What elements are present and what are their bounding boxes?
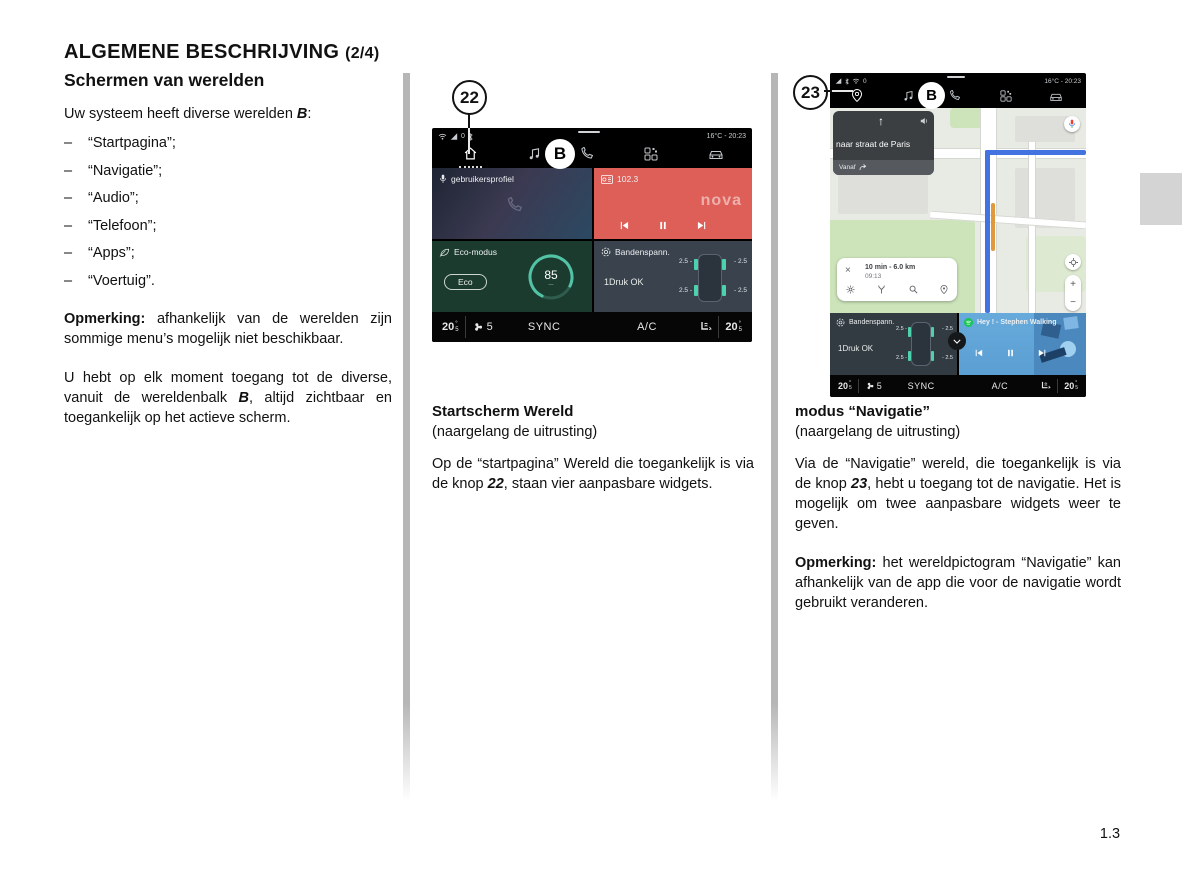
caption-body: Op de “startpagina” Wereld die toeganke­… <box>432 454 754 494</box>
vehicle-world-icon <box>1049 91 1063 102</box>
column-divider <box>403 73 410 801</box>
tyre-icon <box>836 318 845 327</box>
screen-notch <box>578 131 600 133</box>
art-shape <box>1063 316 1079 330</box>
fan-icon <box>865 381 875 391</box>
locate-icon <box>1069 258 1078 267</box>
left-column: Schermen van werelden Uw systeem heeft d… <box>64 70 392 428</box>
tyre-icon <box>601 247 611 257</box>
seat-airflow-icon <box>698 321 712 333</box>
zoom-in-button: + <box>1070 279 1076 290</box>
tyre-rear-left <box>694 285 698 296</box>
tyre-front-right <box>722 259 726 270</box>
status-zero: 0 <box>461 133 465 140</box>
ref-B: B <box>297 106 307 122</box>
ref-23: 23 <box>851 476 867 492</box>
widget-header: Eco-modus <box>439 247 497 257</box>
pressure-rear-left: 2.5 - <box>896 355 907 361</box>
close-icon: × <box>845 266 851 276</box>
world-bar-label-B: B <box>545 139 575 169</box>
world-bar: B <box>830 85 1086 108</box>
list-dash: – <box>64 272 88 291</box>
eco-score-value: 85 <box>526 268 576 282</box>
divider <box>465 316 466 338</box>
list-item-apps: –“Apps”; <box>64 244 392 263</box>
temp-right: 20°5 <box>1064 381 1078 391</box>
list-item-navigatie: –“Navigatie”; <box>64 162 392 181</box>
callout-23-line-inner <box>832 90 853 92</box>
callout-23-line <box>824 90 832 92</box>
nav-widgets: Bandenspann. 1Druk OK 2.5 - - 2.5 2.5 - … <box>830 313 1086 375</box>
widget-header: gebruikersprofiel <box>439 174 514 184</box>
route-line <box>985 150 1086 155</box>
phone-world-icon <box>579 147 593 161</box>
search-icon <box>909 285 918 294</box>
tyre-pressure-widget: Bandenspann. 1Druk OK 2.5 - - 2.5 2.5 - … <box>594 241 752 312</box>
list-dash: – <box>64 189 88 208</box>
list-item-label: “Audio”; <box>88 189 139 208</box>
user-profile-widget: gebruikersprofiel <box>432 168 592 239</box>
world-bar: B <box>432 141 752 168</box>
temp-right-frac: 5 <box>1075 386 1078 391</box>
ac-label: A/C <box>596 321 699 333</box>
caption-subtitle: (naargelang de uitrusting) <box>432 422 754 442</box>
tyre-front-left <box>694 259 698 270</box>
pause-icon <box>659 221 667 230</box>
note-label: Opmerking: <box>64 311 145 327</box>
recenter-button <box>1065 254 1081 270</box>
wifi-icon <box>852 78 860 84</box>
caption-title: modus “Navigatie” <box>795 402 1121 422</box>
page-title-text: ALGEMENE BESCHRIJVING <box>64 41 339 63</box>
temp-time: 16°C - 20:23 <box>1044 78 1081 85</box>
tyre-status-text: 1Druk OK <box>604 277 644 287</box>
radio-widget: 102.3 nova <box>594 168 752 239</box>
tyre-rear-left <box>908 351 911 361</box>
callout-23-number: 23 <box>801 83 820 103</box>
map-view: ↑ naar straat de Paris Vanaf × 10 min - … <box>830 108 1086 313</box>
eco-score-unit: — <box>526 282 576 288</box>
note-label: Opmerking: <box>795 555 876 571</box>
route-card-actions <box>846 285 948 294</box>
divider <box>1057 379 1058 393</box>
signal-icon <box>835 78 842 84</box>
turn-arrow-icon: ↑ <box>878 114 884 128</box>
seat-airflow-icon <box>1039 381 1051 391</box>
radio-station-label: 102.3 <box>617 174 638 184</box>
phone-glyph <box>505 197 522 214</box>
tyre-rear-right <box>722 285 726 296</box>
caption-body: Via de “Navigatie” wereld, die toegankel… <box>795 454 1121 534</box>
widget-header: Bandenspann. <box>601 247 670 257</box>
radio-icon <box>601 175 613 184</box>
callout-22-line-inner <box>468 128 470 154</box>
ref-22: 22 <box>488 476 504 492</box>
worldbar-paragraph: U hebt op elk moment toegang tot de di­v… <box>64 368 392 428</box>
radio-controls <box>620 221 706 230</box>
sync-label: SYNC <box>493 321 596 333</box>
callout-23: 23 <box>793 75 828 110</box>
pressure-rear-left: 2.5 - <box>679 287 692 294</box>
page-number: 1.3 <box>1080 826 1140 842</box>
tyre-front-left <box>908 327 911 337</box>
home-world-icon <box>463 146 478 161</box>
temp-left-frac: 5 <box>849 386 852 391</box>
worlds-list: –“Startpagina”; –“Navigatie”; –“Audio”; … <box>64 134 392 290</box>
collapse-widgets-button <box>948 332 966 350</box>
screen-notch <box>947 76 965 78</box>
gear-icon <box>846 285 855 294</box>
voice-search-button <box>1064 116 1080 132</box>
widget-header: Bandenspann. <box>836 318 894 327</box>
divider <box>718 316 719 338</box>
media-controls <box>975 349 1046 357</box>
signal-icon <box>450 133 458 140</box>
status-zero: 0 <box>863 78 867 85</box>
list-dash: – <box>64 134 88 153</box>
pressure-front-left: 2.5 - <box>896 326 907 332</box>
caption-title: Startscherm Wereld <box>432 402 754 422</box>
temp-right-value: 20 <box>725 321 737 333</box>
home-caption: Startscherm Wereld (naargelang de uitrus… <box>432 402 754 494</box>
apps-world-icon <box>1000 90 1012 102</box>
route-line <box>985 150 990 313</box>
list-item-startpagina: –“Startpagina”; <box>64 134 392 153</box>
zoom-out-button: − <box>1070 297 1076 308</box>
alternate-routes-icon <box>877 285 886 294</box>
car-top-view <box>698 254 722 302</box>
callout-22: 22 <box>452 80 487 115</box>
callout-22-number: 22 <box>460 88 479 108</box>
eco-mode-button: Eco <box>444 274 487 290</box>
climate-bar: 20°5 5 SYNC A/C 20°5 <box>432 312 752 342</box>
home-screen-screenshot: 0 16°C - 20:23 B gebruikersprofiel 102.3… <box>432 128 752 342</box>
tyre-widget-title: Bandenspann. <box>615 247 670 257</box>
temp-left: 20°5 <box>442 321 459 333</box>
navigation-caption: modus “Navigatie” (naargelang de uitrust… <box>795 402 1121 613</box>
temp-left-frac: 5 <box>455 327 458 333</box>
temp-left-value: 20 <box>442 321 454 333</box>
destination-text: naar straat de Paris <box>836 139 910 149</box>
eco-widget-title: Eco-modus <box>454 247 497 257</box>
route-traffic-segment <box>991 203 995 251</box>
vehicle-world-icon <box>708 148 724 160</box>
track-title: Hey ! - Stephen Walking <box>977 319 1056 326</box>
route-summary-text: 10 min - 6.0 km <box>865 264 915 271</box>
tyre-widget-title: Bandenspann. <box>849 319 894 326</box>
next-icon <box>697 221 706 230</box>
manual-page: { "page": { "title": "ALGEMENE BESCHRIJV… <box>0 0 1182 875</box>
voice-guidance-icon <box>920 117 928 125</box>
ref-B: B <box>238 390 248 406</box>
route-arrow-icon <box>859 164 868 171</box>
previous-icon <box>620 221 629 230</box>
mic-icon <box>1068 119 1076 129</box>
tyre-status-text: 1Druk OK <box>838 344 873 353</box>
section-heading: Schermen van werelden <box>64 70 392 91</box>
list-item-voertuig: –“Voertuig”. <box>64 272 392 291</box>
music-world-icon <box>528 147 542 161</box>
list-item-audio: –“Audio”; <box>64 189 392 208</box>
widget-header: Hey ! - Stephen Walking <box>964 318 1056 327</box>
list-item-label: “Apps”; <box>88 244 135 263</box>
pressure-front-right: - 2.5 <box>734 258 747 265</box>
zoom-controls: + − <box>1065 275 1081 311</box>
list-dash: – <box>64 217 88 236</box>
temp-time: 16°C - 20:23 <box>707 133 746 140</box>
spotify-icon <box>964 318 973 327</box>
bluetooth-icon <box>845 78 849 85</box>
temp-left-value: 20 <box>838 381 848 391</box>
profile-widget-label: gebruikersprofiel <box>451 174 514 184</box>
route-eta: 09:13 <box>865 273 881 280</box>
list-item-label: “Navigatie”; <box>88 162 162 181</box>
temp-right-frac: 5 <box>739 327 742 333</box>
fan-icon <box>472 321 484 333</box>
temp-right-value: 20 <box>1064 381 1074 391</box>
intro-text: Uw systeem heeft diverse werelden <box>64 106 297 122</box>
column-divider <box>771 73 778 801</box>
chapter-edge-tab <box>1140 173 1182 225</box>
wifi-icon <box>438 133 447 140</box>
route-summary-card: × 10 min - 6.0 km 09:13 <box>837 258 957 301</box>
caption-text-2: , staan vier aanpasbare widgets. <box>504 476 713 492</box>
temp-right: 20°5 <box>725 321 742 333</box>
previous-icon <box>975 349 983 357</box>
page-title: ALGEMENE BESCHRIJVING (2/4) <box>64 41 380 64</box>
pressure-rear-right: - 2.5 <box>942 355 953 361</box>
media-widget: Hey ! - Stephen Walking <box>959 313 1086 375</box>
home-widgets: gebruikersprofiel 102.3 nova Eco-modus E… <box>432 168 752 312</box>
apps-world-icon <box>644 147 658 161</box>
tyre-front-right <box>931 327 934 337</box>
pressure-front-left: 2.5 - <box>679 258 692 265</box>
phone-world-icon <box>948 90 960 102</box>
label-B-text: B <box>926 87 937 104</box>
eco-leaf-icon <box>439 247 450 257</box>
pressure-front-right: - 2.5 <box>942 326 953 332</box>
from-label: Vanaf <box>839 164 856 171</box>
caption-subtitle: (naargelang de uitrusting) <box>795 422 1121 442</box>
music-world-icon <box>903 90 915 102</box>
pause-icon <box>1007 349 1014 357</box>
pin-icon <box>940 285 948 294</box>
navigation-screen-screenshot: 0 16°C - 20:23 B ↑ naar straat de Paris … <box>830 73 1086 397</box>
list-dash: – <box>64 162 88 181</box>
eco-mode-widget: Eco-modus Eco 85 — <box>432 241 592 312</box>
nav-from-bar: Vanaf <box>833 160 934 175</box>
climate-bar: 20°5 5 SYNC A/C 20°5 <box>830 375 1086 397</box>
car-top-view <box>911 322 931 366</box>
chevron-down-icon <box>953 339 961 344</box>
list-item-label: “Voertuig”. <box>88 272 155 291</box>
page-title-suffix: (2/4) <box>345 45 379 62</box>
tyre-rear-right <box>931 351 934 361</box>
divider <box>858 379 859 393</box>
temp-left: 20°5 <box>838 381 852 391</box>
world-bar-label-B: B <box>918 82 945 109</box>
intro-colon: : <box>307 106 311 122</box>
tyre-pressure-widget: Bandenspann. 1Druk OK 2.5 - - 2.5 2.5 - … <box>830 313 957 375</box>
next-icon <box>1038 349 1046 357</box>
eco-score-gauge: 85 — <box>526 252 576 302</box>
list-item-label: “Telefoon”; <box>88 217 157 236</box>
mic-icon <box>439 174 447 184</box>
list-item-label: “Startpagina”; <box>88 134 176 153</box>
sync-label: SYNC <box>882 381 961 391</box>
map-road <box>1028 142 1036 313</box>
callout-22-line <box>468 113 470 128</box>
turn-instruction-card: ↑ naar straat de Paris Vanaf <box>833 111 934 175</box>
intro-paragraph: Uw systeem heeft diverse werelden B: <box>64 104 392 124</box>
list-item-telefoon: –“Telefoon”; <box>64 217 392 236</box>
caption-note: Opmerking: het wereldpictogram “Navigati… <box>795 553 1121 613</box>
ac-label: A/C <box>961 381 1040 391</box>
pressure-rear-right: - 2.5 <box>734 287 747 294</box>
widget-header: 102.3 <box>601 174 638 184</box>
list-dash: – <box>64 244 88 263</box>
radio-brand-logo: nova <box>701 192 742 210</box>
label-B-text: B <box>554 144 566 164</box>
note-paragraph: Opmerking: afhankelijk van de werelden z… <box>64 309 392 349</box>
